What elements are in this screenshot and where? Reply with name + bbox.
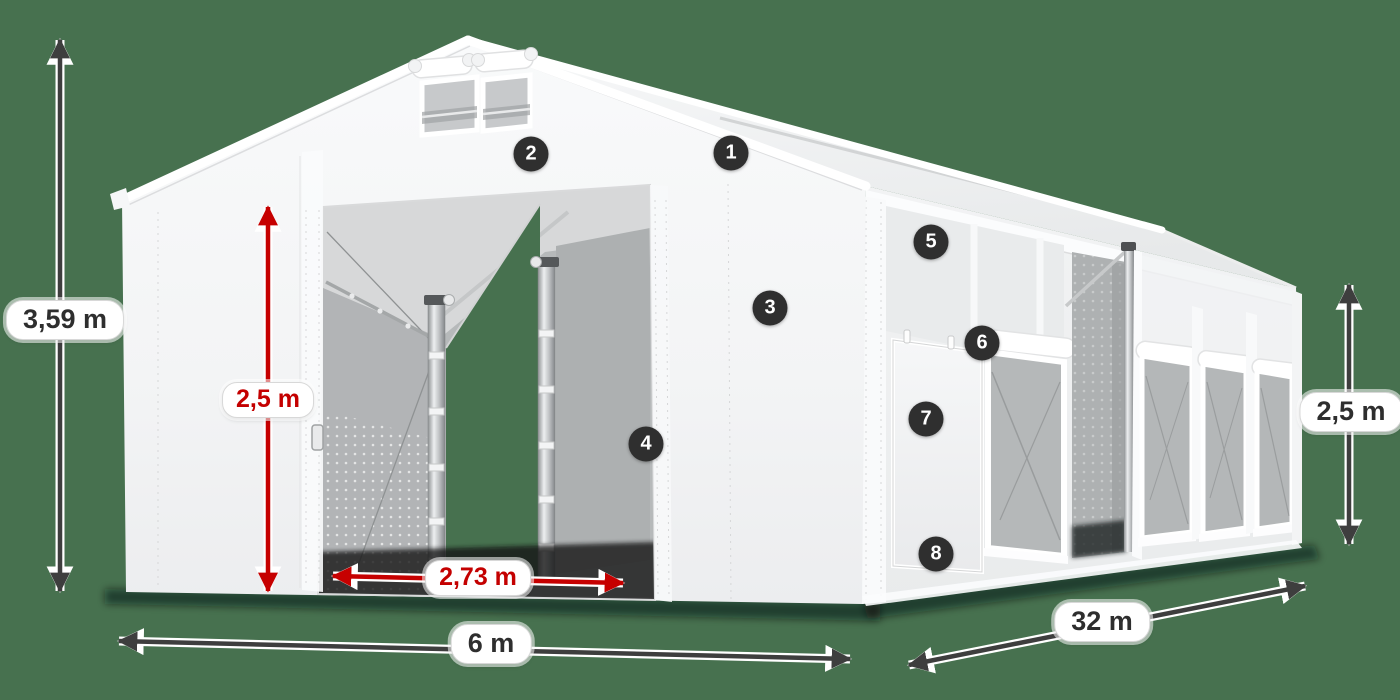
tent-illustration	[0, 0, 1400, 700]
callout-badge-3[interactable]: 3	[753, 291, 788, 326]
dimension-label-side-length: 32 m	[1054, 602, 1150, 642]
product-diagram-stage: 1 2 3 4 5 6 7 8 3,59 m 2,5 m 2,73 m 6 m …	[0, 0, 1400, 700]
callout-badge-4[interactable]: 4	[629, 427, 664, 462]
entrance-jamb-left	[302, 150, 323, 592]
side-window-near	[983, 329, 1077, 564]
door-handle	[312, 425, 323, 450]
dimension-label-entrance-height: 2,5 m	[222, 382, 314, 418]
callout-badge-8[interactable]: 8	[919, 537, 954, 572]
dimension-label-side-wall-height: 2,5 m	[1299, 392, 1400, 432]
dimension-label-total-height: 3,59 m	[6, 300, 124, 340]
callout-badge-7[interactable]: 7	[909, 402, 944, 437]
dimension-label-entrance-width: 2,73 m	[425, 560, 531, 596]
side-open-doorway	[1066, 242, 1142, 560]
gable-window-right	[472, 48, 538, 132]
callout-badge-1[interactable]: 1	[714, 136, 749, 171]
callout-badge-5[interactable]: 5	[914, 225, 949, 260]
entrance-interior	[313, 180, 660, 605]
dimension-label-front-width: 6 m	[451, 624, 532, 664]
callout-badge-6[interactable]: 6	[965, 326, 1000, 361]
side-mesh-windows	[1135, 252, 1302, 547]
callout-badge-2[interactable]: 2	[514, 137, 549, 172]
